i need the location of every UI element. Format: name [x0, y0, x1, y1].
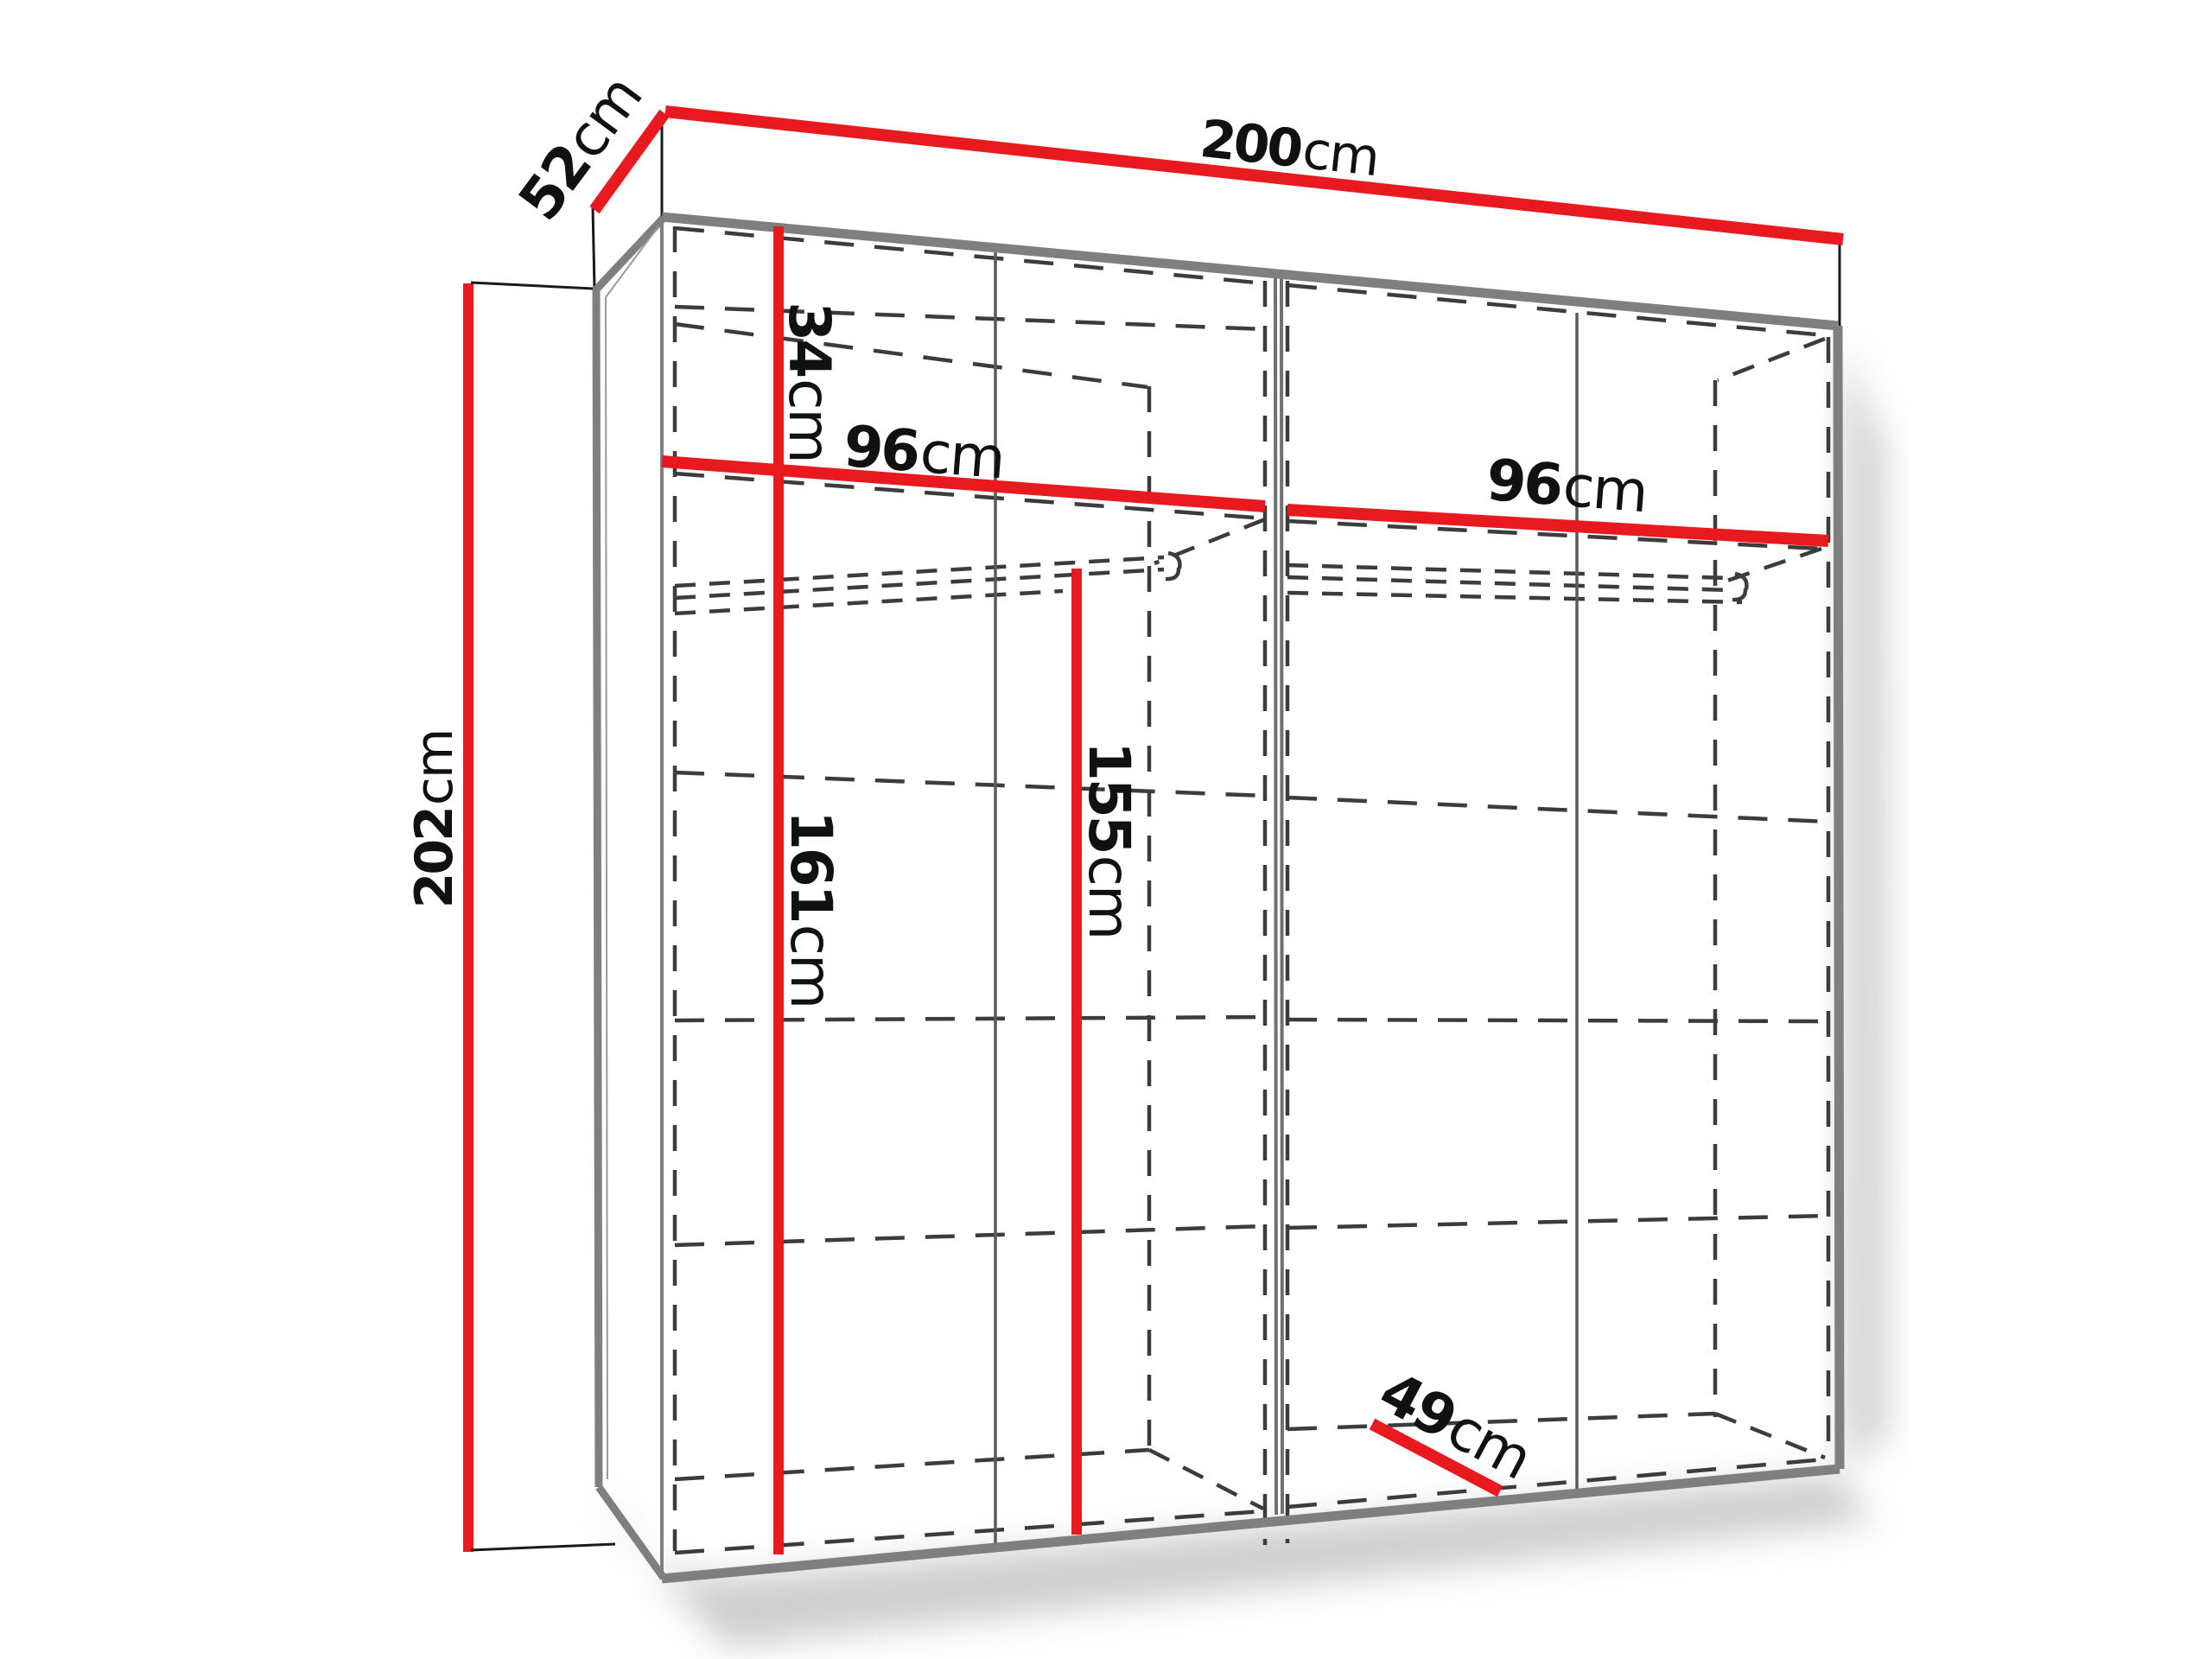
- dimension-label-shelf-drop: 34cm: [780, 302, 837, 461]
- dimension-label-right-section-width: 96cm: [1484, 452, 1649, 521]
- dimension-label-total-height: 202cm: [409, 730, 461, 909]
- center-partition: [1275, 275, 1282, 1515]
- rod-hook-left: [1166, 553, 1179, 579]
- left-side-panel: [593, 207, 664, 1578]
- dimension-label-left-inner-height: 161cm: [782, 810, 839, 1007]
- wardrobe-dimension-diagram: 200cm 52cm 202cm 34cm 96cm 96cm 161cm 15…: [0, 0, 2212, 1659]
- dimension-label-rod-clear-height: 155cm: [1080, 741, 1137, 938]
- dimension-label-left-section-width: 96cm: [842, 418, 1006, 487]
